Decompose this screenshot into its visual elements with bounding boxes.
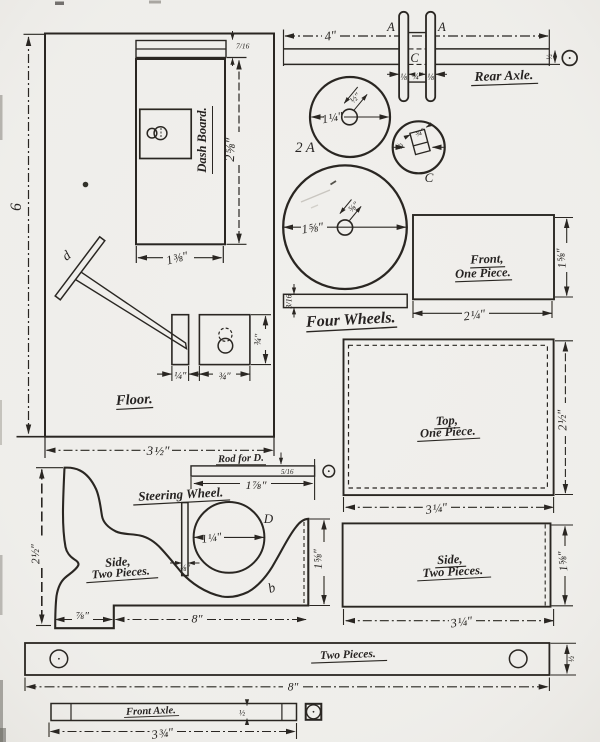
svg-text:C: C [425, 170, 434, 185]
svg-text:3/16: 3/16 [285, 294, 294, 309]
svg-text:Rod for D.: Rod for D. [217, 453, 264, 466]
svg-text:One Piece.: One Piece. [420, 424, 476, 441]
svg-text:6: 6 [8, 203, 25, 211]
svg-text:2 A: 2 A [295, 140, 315, 156]
svg-text:¾″: ¾″ [218, 372, 231, 383]
svg-text:1 ⅝″: 1 ⅝″ [557, 551, 571, 572]
svg-text:3 ½″: 3 ½″ [146, 443, 170, 458]
svg-text:⅛″: ⅛″ [180, 563, 191, 573]
svg-text:⅛: ⅛ [400, 72, 407, 82]
svg-text:8″: 8″ [288, 682, 299, 694]
svg-text:½: ½ [545, 54, 554, 60]
svg-text:Front,: Front, [469, 251, 503, 266]
svg-text:⅞″: ⅞″ [76, 610, 89, 622]
svg-text:2 ½″: 2 ½″ [30, 544, 43, 565]
svg-text:5/16: 5/16 [281, 468, 294, 476]
svg-text:A: A [437, 20, 446, 34]
svg-text:7/16: 7/16 [236, 42, 250, 51]
svg-text:1 ⅞″: 1 ⅞″ [246, 478, 268, 492]
svg-text:D: D [263, 511, 274, 526]
svg-text:½: ½ [566, 655, 576, 662]
svg-text:1 ⅝″: 1 ⅝″ [555, 248, 569, 269]
svg-text:One Piece.: One Piece. [455, 265, 511, 281]
svg-text:⅛: ⅛ [427, 72, 434, 82]
svg-text:Dash Board.: Dash Board. [195, 107, 209, 173]
svg-text:1 ⅝″: 1 ⅝″ [312, 549, 325, 570]
svg-text:¼″: ¼″ [174, 371, 187, 382]
svg-text:2 ½″: 2 ½″ [554, 408, 569, 431]
svg-text:A: A [386, 20, 395, 34]
svg-text:¾″: ¾″ [253, 333, 265, 346]
svg-text:½: ½ [239, 708, 246, 718]
svg-text:Two Pieces.: Two Pieces. [320, 648, 376, 662]
svg-text:¾″: ¾″ [412, 71, 423, 81]
svg-text:Rear Axle.: Rear Axle. [473, 67, 533, 84]
svg-text:C: C [410, 51, 419, 65]
svg-text:8″: 8″ [192, 612, 204, 626]
svg-text:2 ⅝″: 2 ⅝″ [222, 137, 238, 162]
svg-text:Floor.: Floor. [115, 391, 153, 409]
